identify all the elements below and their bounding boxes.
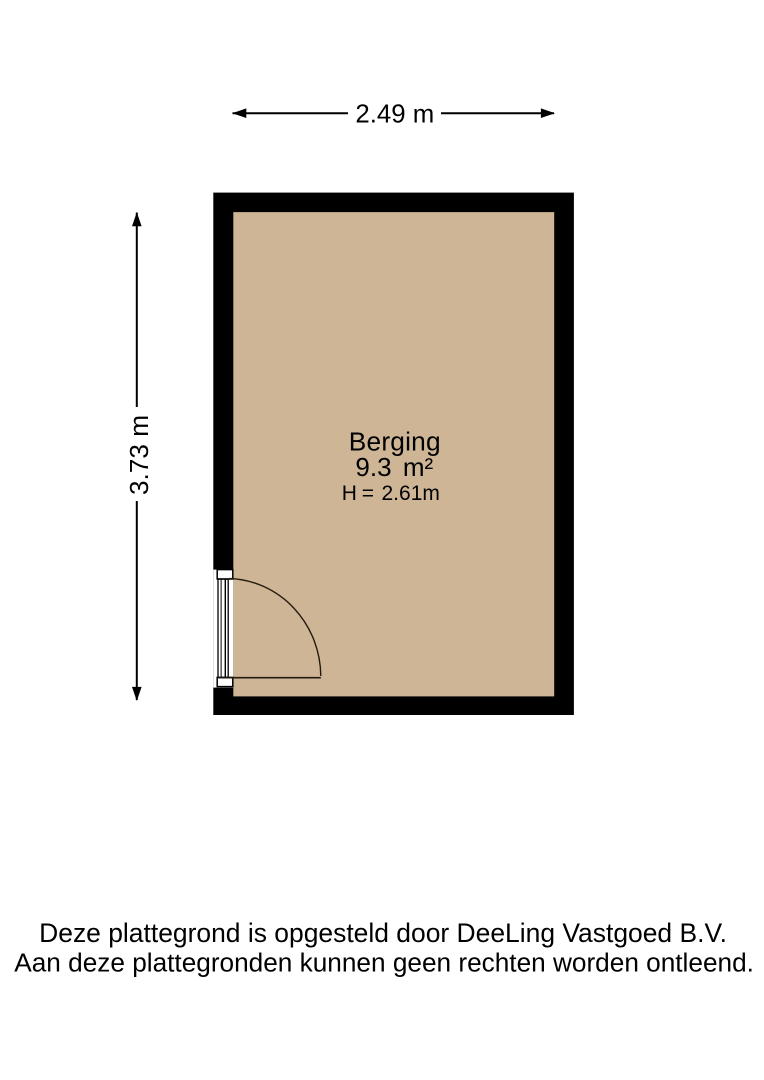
svg-text:2.49 m: 2.49 m bbox=[355, 101, 434, 129]
svg-text:Aan deze plattegronden kunnen: Aan deze plattegronden kunnen geen recht… bbox=[14, 948, 754, 978]
svg-text:3.73 m: 3.73 m bbox=[124, 415, 154, 495]
svg-text:H=2.61m: H=2.61m bbox=[342, 482, 440, 505]
svg-text:Deze plattegrond is opgesteld: Deze plattegrond is opgesteld door DeeLi… bbox=[39, 918, 727, 948]
